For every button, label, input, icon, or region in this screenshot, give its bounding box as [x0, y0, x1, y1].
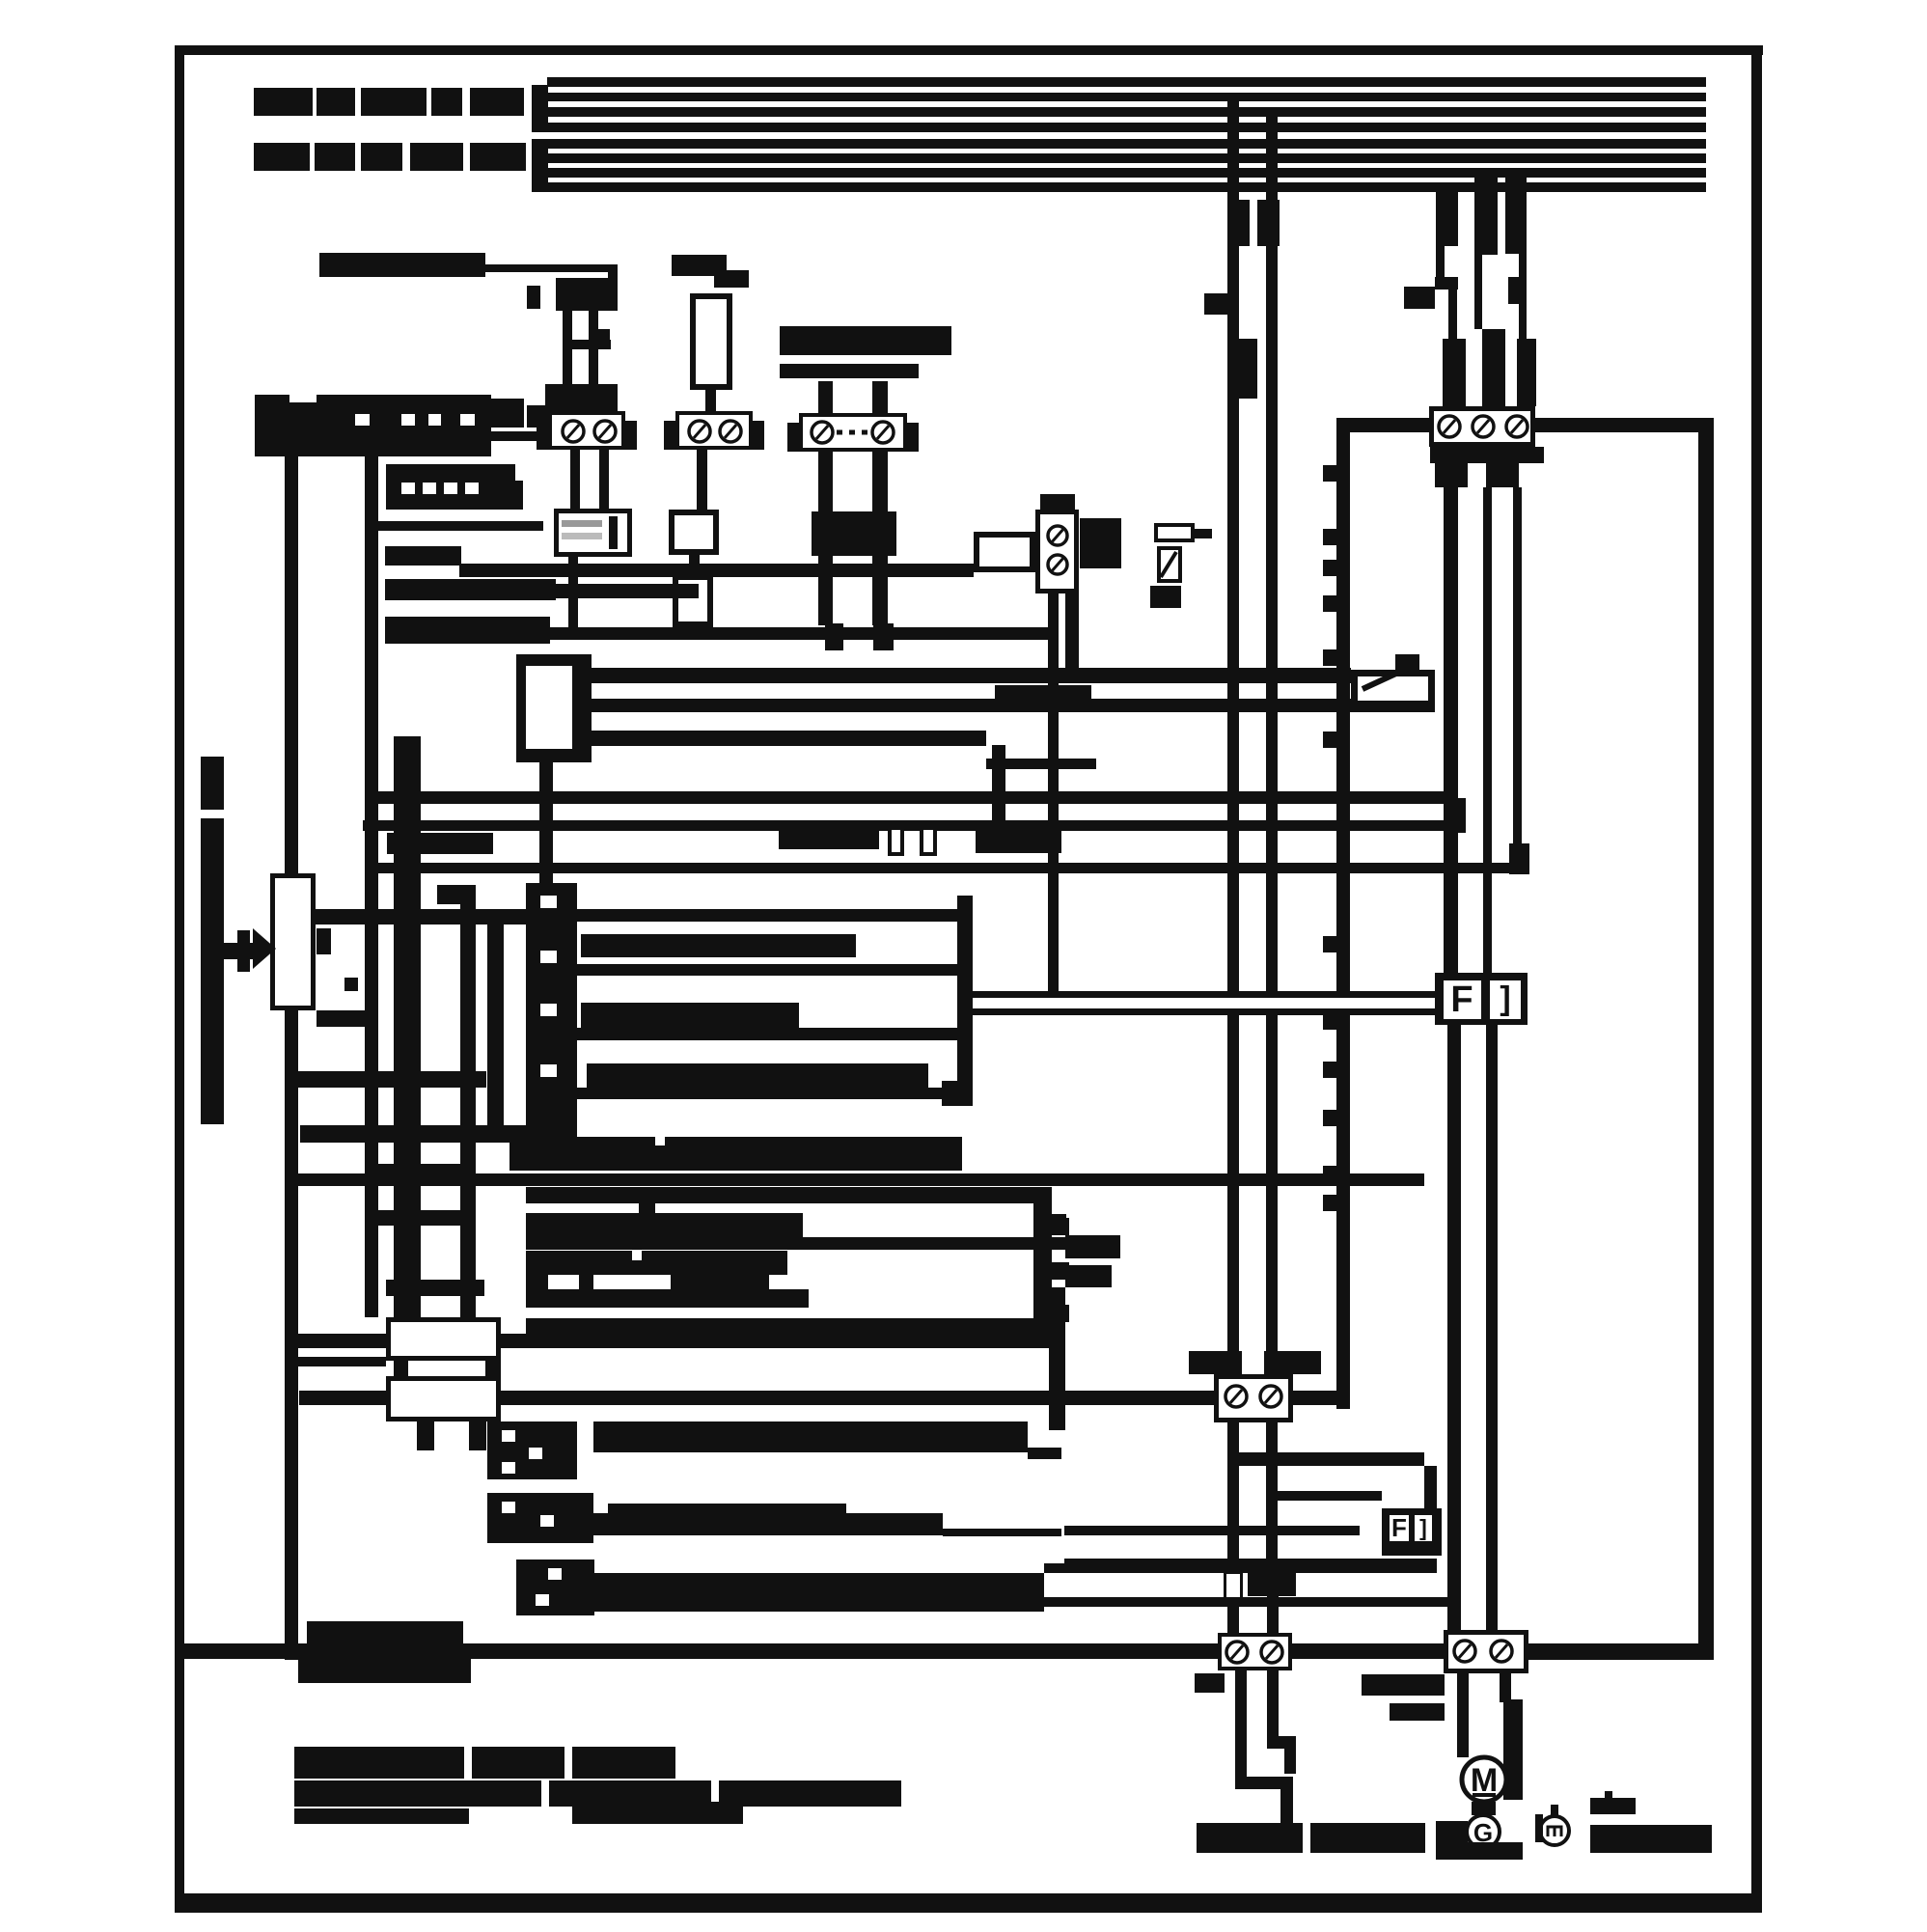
svg-text:]: ]	[1500, 980, 1510, 1017]
svg-text:F: F	[1450, 980, 1473, 1020]
svg-text:F: F	[1391, 1513, 1407, 1542]
svg-text:]: ]	[1419, 1515, 1427, 1540]
